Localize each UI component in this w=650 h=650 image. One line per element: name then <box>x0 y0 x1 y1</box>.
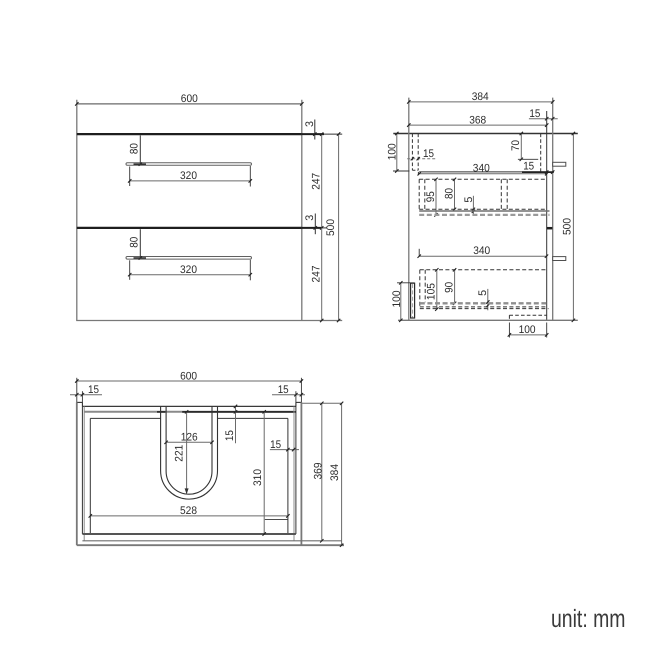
svg-text:15: 15 <box>523 161 534 173</box>
svg-text:340: 340 <box>473 245 490 257</box>
svg-text:384: 384 <box>329 464 341 481</box>
svg-text:15: 15 <box>278 384 289 396</box>
svg-text:105: 105 <box>426 283 438 300</box>
svg-text:368: 368 <box>469 114 486 126</box>
svg-text:80: 80 <box>129 143 141 154</box>
svg-text:3: 3 <box>304 215 316 221</box>
svg-text:126: 126 <box>181 432 198 444</box>
svg-text:3: 3 <box>304 121 316 127</box>
svg-text:247: 247 <box>310 173 322 190</box>
svg-text:15: 15 <box>529 108 540 120</box>
svg-text:340: 340 <box>473 162 490 174</box>
svg-text:320: 320 <box>180 170 197 182</box>
svg-text:95: 95 <box>425 191 437 202</box>
svg-text:5: 5 <box>477 290 489 296</box>
svg-text:221: 221 <box>174 445 186 462</box>
svg-text:70: 70 <box>510 140 522 151</box>
svg-text:600: 600 <box>181 93 198 105</box>
svg-text:80: 80 <box>129 237 141 248</box>
svg-text:5: 5 <box>463 197 475 203</box>
svg-text:100: 100 <box>519 324 536 336</box>
svg-text:15: 15 <box>88 384 99 396</box>
svg-text:100: 100 <box>387 143 399 160</box>
svg-text:500: 500 <box>325 219 337 236</box>
svg-text:100: 100 <box>391 291 403 308</box>
svg-text:528: 528 <box>180 505 197 517</box>
svg-text:369: 369 <box>313 463 325 480</box>
svg-text:310: 310 <box>252 469 264 486</box>
svg-text:15: 15 <box>423 148 434 160</box>
svg-text:247: 247 <box>310 266 322 283</box>
svg-text:500: 500 <box>562 218 574 235</box>
svg-text:15: 15 <box>270 439 281 451</box>
svg-text:600: 600 <box>180 370 197 382</box>
svg-text:15: 15 <box>224 430 236 441</box>
svg-text:320: 320 <box>180 264 197 276</box>
svg-text:90: 90 <box>444 282 456 293</box>
svg-text:80: 80 <box>443 188 455 199</box>
svg-text:384: 384 <box>472 91 489 103</box>
svg-text:unit: mm: unit: mm <box>551 605 626 633</box>
